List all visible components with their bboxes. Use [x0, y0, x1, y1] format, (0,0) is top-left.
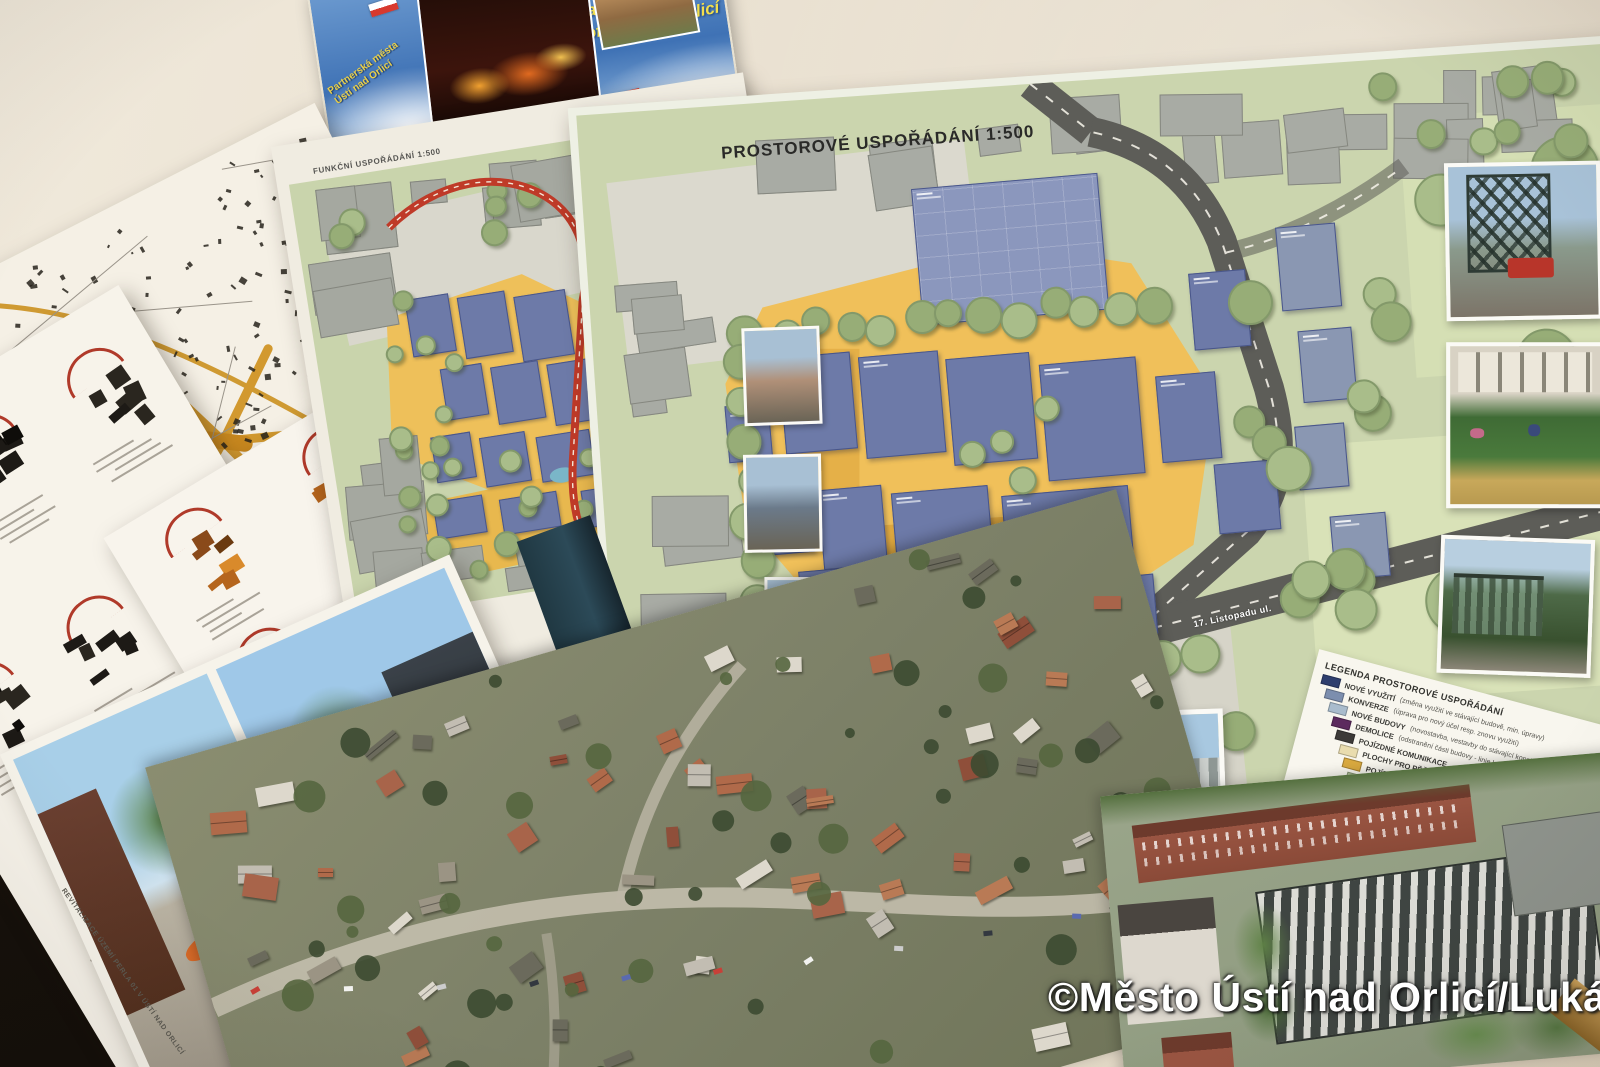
phase-block	[123, 641, 139, 656]
red-van	[1508, 257, 1554, 278]
town-block-mark	[30, 284, 37, 289]
roof-ridge	[954, 861, 970, 863]
phase-note-line	[0, 494, 43, 528]
building-label-mark	[896, 497, 912, 500]
house-roof	[1094, 596, 1121, 609]
roof-ridge	[996, 618, 1014, 628]
house-roof	[1046, 671, 1068, 687]
person	[1470, 428, 1484, 438]
town-block-mark	[259, 223, 264, 229]
parked-car	[983, 930, 992, 936]
phase-block	[134, 404, 156, 426]
building-label-mark	[1007, 499, 1023, 502]
roof-ridge	[659, 736, 678, 745]
building-label-mark	[1161, 383, 1185, 387]
phase-red-arc	[153, 495, 223, 558]
plan-building	[1155, 371, 1222, 463]
inset-photo	[743, 454, 823, 553]
roof-ridge	[318, 872, 333, 873]
roof-ridge	[1033, 1032, 1067, 1041]
legend-swatch	[1331, 716, 1352, 731]
reference-photo-truss	[1444, 161, 1600, 322]
building-label-mark	[823, 497, 847, 501]
roof-ridge	[550, 758, 567, 762]
roof-ridge	[1136, 682, 1148, 690]
town-block-mark	[259, 242, 263, 247]
house-roof	[853, 585, 875, 606]
building-label-mark	[1303, 338, 1327, 342]
phase-block	[214, 535, 234, 554]
building-label-mark	[1281, 234, 1305, 238]
photo-of-planning-boards: Partnership Town of Ústí nad Orlicí Part…	[0, 0, 1600, 1067]
house-roof	[209, 811, 247, 835]
house-roof	[412, 735, 432, 750]
parked-car	[1072, 913, 1081, 918]
town-block-mark	[250, 425, 256, 431]
building-label-mark	[897, 500, 921, 504]
house-roof	[688, 764, 711, 786]
building-label-mark	[823, 493, 839, 496]
building-label-mark	[1161, 380, 1177, 383]
house-roof	[1016, 757, 1038, 775]
building-label-mark	[916, 192, 932, 195]
house-roof	[552, 1019, 567, 1041]
person	[1528, 424, 1540, 436]
phase-red-arc	[55, 335, 125, 398]
house-roof	[954, 853, 971, 871]
plan-building	[858, 350, 947, 459]
roof-ridge	[591, 773, 609, 786]
phase-block	[108, 403, 131, 424]
town-block-mark	[145, 293, 148, 297]
legend-swatch	[1327, 702, 1348, 717]
house-roof	[666, 826, 680, 847]
gray-shed	[1502, 806, 1600, 917]
house-roof	[870, 652, 893, 672]
roof-ridge	[1017, 764, 1037, 768]
town-block-mark	[285, 298, 288, 303]
house-roof	[622, 874, 655, 885]
town-block-mark	[33, 265, 39, 269]
building-label-mark	[1303, 335, 1319, 338]
legend-swatch	[1342, 757, 1363, 772]
town-block-mark	[253, 407, 259, 411]
building-label-mark	[1194, 277, 1210, 280]
legend-swatch	[1320, 674, 1341, 689]
roof-ridge	[688, 774, 711, 775]
building-label-mark	[1007, 503, 1031, 507]
partner-town-photo	[585, 0, 701, 50]
house-roof	[242, 873, 279, 900]
greenhouse	[1452, 573, 1544, 636]
building-label-mark	[1335, 523, 1359, 527]
building-label-mark	[1045, 371, 1069, 375]
phase-block	[88, 389, 107, 408]
building-facade	[1458, 352, 1592, 392]
town-block-mark	[281, 269, 288, 274]
roof-ridge	[552, 1029, 567, 1030]
phase-note-line	[111, 444, 173, 482]
town-block-mark	[233, 429, 239, 433]
town-block-mark	[15, 324, 21, 328]
reference-photo-greenhouse	[1436, 535, 1595, 678]
courtyard-trees	[1230, 900, 1302, 1045]
phase-block	[89, 669, 109, 686]
roof-ridge	[881, 886, 902, 894]
town-block-mark	[265, 373, 272, 379]
parked-car	[344, 986, 353, 991]
roof-ridge	[1046, 677, 1067, 679]
roof-ridge	[806, 799, 833, 804]
building-label-mark	[1044, 368, 1060, 371]
town-block-mark	[146, 276, 151, 280]
phase-note-line	[202, 591, 261, 628]
building-label-mark	[863, 360, 879, 363]
small-brick-house	[1161, 1032, 1235, 1067]
building-label-mark	[917, 196, 941, 200]
building-label-mark	[864, 364, 888, 368]
photo-credit-watermark: ©Město Ústí nad Orlicí/Lukáš Prokeš	[1048, 974, 1600, 1021]
house-roof	[438, 862, 456, 882]
town-block-mark	[216, 386, 219, 391]
building-label-mark	[1194, 280, 1218, 284]
parked-car	[894, 945, 903, 950]
inset-photo	[741, 326, 822, 427]
legend-swatch	[1338, 743, 1359, 758]
roof-ridge	[210, 820, 246, 824]
building-label-mark	[1280, 231, 1296, 234]
legend-swatch	[1335, 729, 1356, 744]
plan-building	[1275, 222, 1342, 311]
reference-photo-park	[1446, 342, 1600, 508]
phase-block	[0, 451, 24, 476]
house-roof	[318, 868, 333, 877]
building-label-mark	[1335, 520, 1351, 523]
poland-flag	[368, 0, 399, 17]
roof-ridge	[446, 721, 467, 731]
roof-ridge	[872, 917, 888, 928]
legend-swatch	[1324, 688, 1345, 703]
